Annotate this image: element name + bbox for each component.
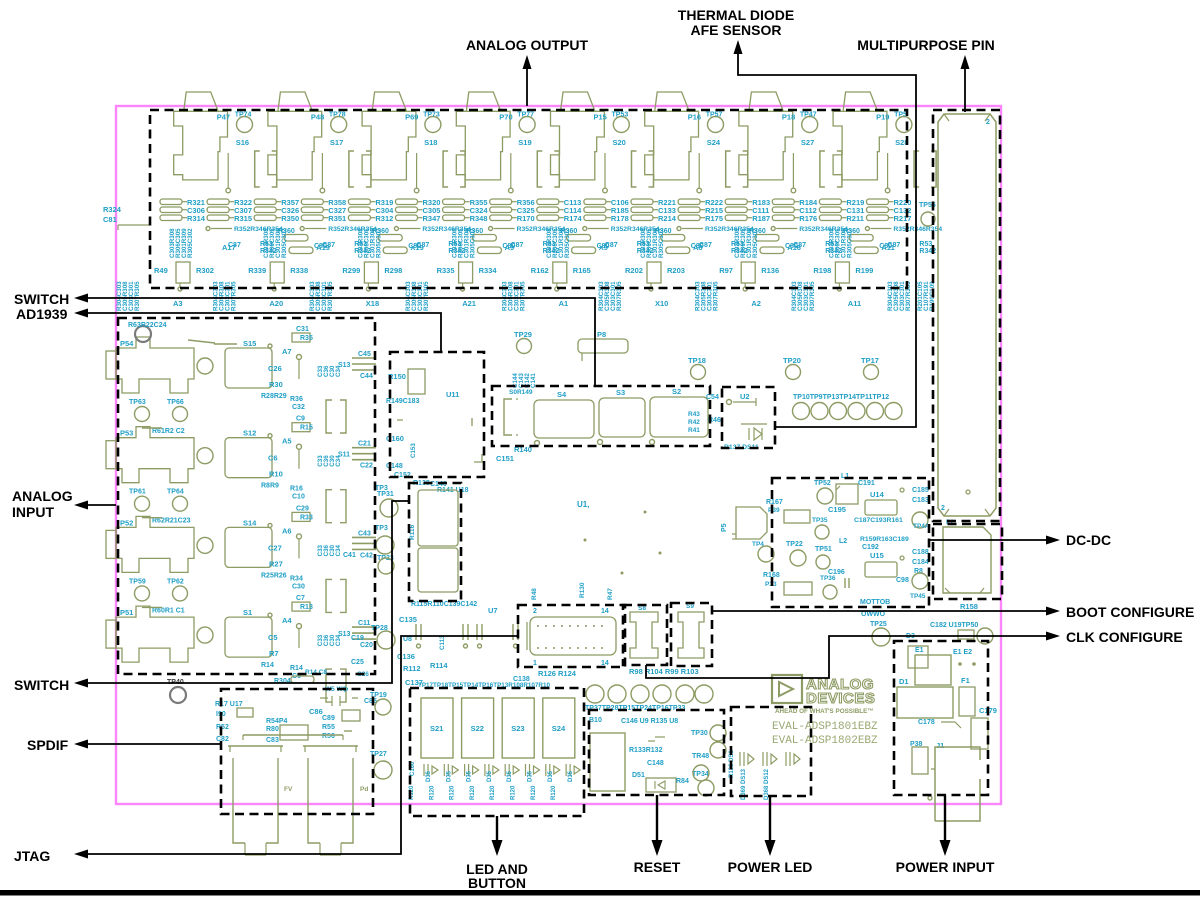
- svg-text:TP47: TP47: [800, 112, 817, 119]
- svg-text:R7: R7: [269, 649, 279, 658]
- svg-text:P53: P53: [120, 429, 133, 438]
- svg-text:R307R305: R307R305: [230, 281, 237, 311]
- svg-text:C19: C19: [351, 635, 364, 642]
- svg-text:R17 U17: R17 U17: [215, 701, 243, 708]
- svg-text:R298: R298: [384, 266, 402, 275]
- svg-text:R130: R130: [579, 582, 586, 598]
- svg-text:S27: S27: [801, 138, 814, 147]
- svg-text:C183: C183: [912, 497, 929, 504]
- svg-text:TP62: TP62: [167, 578, 184, 585]
- svg-text:R55: R55: [322, 724, 335, 731]
- svg-text:U11: U11: [446, 390, 459, 399]
- svg-text:TP53: TP53: [612, 112, 629, 119]
- svg-text:R167: R167: [766, 499, 783, 506]
- svg-text:TP29: TP29: [514, 330, 532, 339]
- svg-text:R53: R53: [919, 241, 932, 248]
- svg-text:U2: U2: [740, 392, 750, 401]
- svg-text:R15: R15: [300, 425, 313, 432]
- svg-text:TP77: TP77: [517, 112, 534, 119]
- svg-text:R97: R97: [719, 266, 733, 275]
- svg-text:TP73: TP73: [423, 112, 440, 119]
- svg-text:U15: U15: [870, 551, 884, 560]
- svg-text:R348: R348: [470, 214, 488, 223]
- svg-text:X18: X18: [366, 299, 379, 308]
- svg-text:R307R305: R307R305: [616, 281, 623, 311]
- svg-text:TP64: TP64: [167, 489, 184, 496]
- svg-text:R120: R120: [429, 785, 435, 800]
- svg-text:R14: R14: [290, 665, 303, 672]
- svg-text:C6: C6: [268, 454, 278, 463]
- svg-text:R187: R187: [752, 214, 770, 223]
- svg-text:R198: R198: [813, 266, 831, 275]
- svg-text:TP78: TP78: [329, 112, 346, 119]
- svg-text:J1: J1: [936, 741, 944, 750]
- svg-text:C34: C34: [335, 544, 342, 556]
- svg-text:ANALOG OUTPUT: ANALOG OUTPUT: [466, 37, 589, 53]
- svg-text:R34: R34: [290, 575, 303, 582]
- svg-text:1: 1: [533, 660, 537, 667]
- svg-text:C87: C87: [322, 242, 335, 249]
- svg-text:R174: R174: [564, 214, 583, 223]
- svg-text:R203: R203: [667, 266, 685, 275]
- svg-text:C87: C87: [511, 242, 524, 249]
- svg-text:C98: C98: [896, 577, 909, 584]
- svg-text:TP3: TP3: [375, 485, 388, 492]
- svg-text:S22: S22: [471, 724, 484, 733]
- svg-text:TP31: TP31: [377, 491, 394, 498]
- svg-text:D35: D35: [467, 770, 473, 782]
- svg-text:P5: P5: [721, 523, 728, 532]
- svg-text:EVAL-ADSP1802EBZ: EVAL-ADSP1802EBZ: [772, 735, 878, 747]
- svg-text:R84: R84: [676, 778, 689, 785]
- svg-text:R315: R315: [234, 214, 252, 223]
- svg-text:U8: U8: [403, 636, 412, 643]
- svg-text:P39: P39: [768, 507, 780, 514]
- svg-text:R80: R80: [266, 726, 279, 733]
- svg-text:TP63: TP63: [129, 399, 146, 406]
- svg-text:BOOT CONFIGURE: BOOT CONFIGURE: [1066, 604, 1194, 620]
- svg-text:D35: D35: [507, 770, 513, 782]
- svg-text:TP45: TP45: [910, 593, 926, 600]
- svg-text:C21: C21: [358, 441, 371, 448]
- svg-text:C86: C86: [309, 707, 323, 716]
- svg-text:C82: C82: [216, 736, 229, 743]
- svg-text:POWER INPUT: POWER INPUT: [896, 859, 995, 875]
- svg-text:R202: R202: [625, 266, 643, 275]
- svg-text:A11: A11: [848, 299, 861, 308]
- svg-text:C31: C31: [296, 326, 309, 333]
- svg-text:R98 R104 R99 R103: R98 R104 R99 R103: [629, 667, 699, 676]
- svg-text:R60R1 C1: R60R1 C1: [152, 607, 185, 614]
- svg-text:R165: R165: [573, 266, 591, 275]
- svg-text:R120: R120: [470, 785, 476, 800]
- svg-text:S21: S21: [430, 724, 443, 733]
- svg-text:R305C302: R305C302: [187, 228, 194, 258]
- svg-text:S14: S14: [243, 518, 257, 527]
- svg-text:S0R149: S0R149: [509, 389, 533, 396]
- svg-text:OWWO: OWWO: [861, 611, 886, 618]
- svg-text:TP57: TP57: [706, 112, 723, 119]
- svg-text:AFE SENSOR: AFE SENSOR: [690, 22, 781, 38]
- svg-text:R136: R136: [761, 266, 779, 275]
- svg-text:R120: R120: [490, 785, 496, 800]
- svg-text:TP25: TP25: [870, 621, 887, 628]
- svg-text:R307R305: R307R305: [712, 281, 719, 311]
- svg-text:TP35: TP35: [812, 517, 828, 524]
- svg-text:S13: S13: [338, 362, 351, 369]
- svg-text:R305C302: R305C302: [470, 228, 477, 258]
- svg-text:S3: S3: [616, 388, 625, 397]
- svg-text:R114: R114: [430, 661, 448, 670]
- svg-text:TP61: TP61: [129, 489, 146, 496]
- svg-text:D51: D51: [632, 772, 645, 779]
- svg-text:R307R305: R307R305: [809, 281, 816, 311]
- svg-text:S4: S4: [557, 390, 567, 399]
- svg-text:MOTTOB: MOTTOB: [860, 599, 890, 606]
- svg-text:S19: S19: [518, 138, 531, 147]
- svg-text:C20: C20: [360, 642, 373, 649]
- svg-text:2: 2: [941, 505, 945, 512]
- svg-text:R33: R33: [300, 514, 313, 521]
- svg-text:R307R305: R307R305: [423, 281, 430, 311]
- svg-text:D35: D35: [568, 770, 574, 782]
- svg-text:R25R26: R25R26: [261, 572, 287, 579]
- svg-text:R8R9: R8R9: [261, 483, 279, 490]
- svg-text:C196: C196: [828, 569, 845, 576]
- svg-text:R48: R48: [531, 588, 538, 600]
- svg-text:C27: C27: [268, 543, 282, 552]
- svg-text:U1,: U1,: [577, 500, 589, 509]
- svg-text:TP51: TP51: [815, 546, 832, 553]
- svg-text:ANALOG: ANALOG: [12, 488, 73, 504]
- svg-text:S2: S2: [672, 387, 681, 396]
- svg-text:TP52: TP52: [814, 480, 831, 487]
- svg-text:JTAG: JTAG: [14, 848, 50, 864]
- svg-text:R28R29: R28R29: [261, 393, 287, 400]
- svg-text:A6: A6: [282, 526, 292, 535]
- svg-text:C5: C5: [268, 633, 278, 642]
- svg-text:R305C302: R305C302: [752, 228, 759, 258]
- svg-text:D35: D35: [548, 770, 554, 782]
- svg-text:C87: C87: [605, 242, 618, 249]
- svg-text:R162: R162: [531, 266, 549, 275]
- svg-text:R42: R42: [688, 419, 700, 426]
- svg-text:AD1939: AD1939: [16, 306, 68, 322]
- svg-text:R13: R13: [300, 604, 313, 611]
- svg-text:R52: R52: [216, 724, 229, 731]
- svg-text:E1 E2: E1 E2: [953, 649, 972, 656]
- svg-text:S1: S1: [243, 608, 252, 617]
- svg-text:MULTIPURPOSE PIN: MULTIPURPOSE PIN: [857, 37, 994, 53]
- svg-text:INPUT: INPUT: [12, 504, 54, 520]
- svg-text:C187C193R161: C187C193R161: [854, 517, 903, 524]
- svg-text:2: 2: [986, 119, 990, 126]
- svg-text:R314: R314: [187, 214, 206, 223]
- svg-text:C42: C42: [360, 552, 373, 559]
- svg-text:R27: R27: [269, 559, 283, 568]
- svg-text:A2: A2: [751, 299, 761, 308]
- svg-text:R30: R30: [269, 380, 283, 389]
- svg-text:S11: S11: [338, 452, 350, 459]
- svg-text:R217: R217: [894, 214, 912, 223]
- svg-text:SPDIF: SPDIF: [27, 737, 69, 753]
- svg-text:DEVICES: DEVICES: [806, 690, 875, 707]
- svg-text:P51: P51: [120, 608, 133, 617]
- svg-text:A4: A4: [282, 616, 292, 625]
- svg-text:R149C183: R149C183: [386, 398, 420, 405]
- svg-text:R211: R211: [846, 214, 864, 223]
- svg-text:C87: C87: [887, 242, 900, 249]
- svg-text:R312: R312: [375, 214, 393, 223]
- svg-text:C25: C25: [351, 659, 364, 666]
- svg-text:Pd: Pd: [360, 786, 368, 793]
- svg-text:S20: S20: [613, 138, 626, 147]
- svg-text:C192: C192: [862, 544, 879, 551]
- svg-text:R159R163C189: R159R163C189: [860, 536, 909, 543]
- svg-text:R305C302: R305C302: [846, 228, 853, 258]
- svg-text:C195: C195: [828, 505, 846, 514]
- svg-text:BUTTON: BUTTON: [468, 875, 526, 891]
- svg-text:R41: R41: [688, 427, 700, 434]
- svg-text:C11: C11: [358, 620, 371, 627]
- svg-text:U7: U7: [488, 606, 498, 615]
- svg-text:A5: A5: [282, 437, 292, 446]
- svg-text:P16: P16: [688, 113, 701, 122]
- svg-text:R305C302: R305C302: [658, 228, 665, 258]
- svg-text:A7: A7: [282, 347, 292, 356]
- svg-text:DC-DC: DC-DC: [1066, 532, 1111, 548]
- svg-text:P19: P19: [876, 113, 889, 122]
- svg-text:R199: R199: [855, 266, 873, 275]
- svg-text:TR48: TR48: [692, 753, 709, 760]
- svg-text:TP4A: TP4A: [913, 523, 930, 530]
- svg-text:C32: C32: [292, 404, 305, 411]
- svg-text:C87: C87: [228, 242, 241, 249]
- svg-text:C188: C188: [912, 549, 929, 556]
- svg-text:P15: P15: [594, 113, 607, 122]
- svg-text:TP74: TP74: [235, 112, 252, 119]
- svg-text:S23: S23: [511, 724, 524, 733]
- svg-text:A1: A1: [559, 299, 569, 308]
- svg-text:C136: C136: [397, 652, 415, 661]
- svg-text:R307R305: R307R305: [327, 281, 334, 311]
- svg-text:2: 2: [533, 608, 537, 615]
- svg-text:R47: R47: [607, 588, 614, 600]
- svg-text:R307R305: R307R305: [520, 281, 527, 311]
- svg-text:TP3: TP3: [375, 525, 388, 532]
- svg-text:R305C302: R305C302: [564, 228, 571, 258]
- svg-text:14: 14: [601, 608, 609, 615]
- svg-text:TP20: TP20: [783, 356, 801, 365]
- svg-text:R61R2 C2: R61R2 C2: [152, 428, 185, 435]
- svg-text:P47: P47: [217, 113, 230, 122]
- svg-text:F1: F1: [961, 676, 970, 685]
- svg-text:R56: R56: [322, 733, 335, 740]
- svg-text:R14: R14: [261, 662, 274, 669]
- svg-text:R133R132: R133R132: [629, 747, 663, 754]
- svg-text:C29: C29: [296, 505, 309, 512]
- svg-text:S18: S18: [424, 138, 437, 147]
- svg-text:TP17: TP17: [861, 356, 879, 365]
- svg-text:R176: R176: [799, 214, 817, 223]
- svg-text:S24: S24: [707, 138, 721, 147]
- svg-text:C43: C43: [358, 530, 371, 537]
- svg-text:R351: R351: [328, 214, 346, 223]
- svg-text:C178: C178: [918, 719, 935, 726]
- svg-text:P52: P52: [120, 518, 133, 527]
- svg-text:C87: C87: [699, 242, 712, 249]
- svg-text:R352R346R354: R352R346R354: [893, 226, 942, 233]
- svg-text:R305C302: R305C302: [281, 228, 288, 258]
- svg-text:C113: C113: [439, 635, 446, 650]
- svg-text:R302: R302: [196, 266, 214, 275]
- svg-text:C30: C30: [292, 583, 305, 590]
- svg-text:R338: R338: [290, 266, 308, 275]
- svg-text:B10: B10: [589, 717, 602, 724]
- svg-text:R170: R170: [517, 214, 535, 223]
- svg-text:R16: R16: [290, 486, 303, 493]
- svg-text:POWER LED: POWER LED: [728, 859, 813, 875]
- svg-text:C10: C10: [292, 494, 305, 501]
- svg-text:R178: R178: [611, 214, 629, 223]
- svg-text:EVAL-ADSP1801EBZ: EVAL-ADSP1801EBZ: [772, 721, 878, 733]
- svg-text:R112: R112: [403, 664, 421, 673]
- svg-text:R10: R10: [269, 470, 283, 479]
- svg-text:P70: P70: [499, 113, 512, 122]
- svg-text:D35: D35: [487, 770, 493, 782]
- svg-text:R126 R124: R126 R124: [538, 669, 577, 678]
- svg-text:R335: R335: [437, 266, 455, 275]
- svg-text:C7: C7: [296, 595, 305, 602]
- svg-text:R347: R347: [423, 214, 441, 223]
- svg-text:D35: D35: [528, 770, 534, 782]
- svg-text:C81: C81: [103, 215, 117, 224]
- svg-text:CLK CONFIGURE: CLK CONFIGURE: [1066, 629, 1183, 645]
- svg-text:C44: C44: [360, 373, 373, 380]
- svg-text:C41: C41: [343, 552, 356, 559]
- svg-text:R43: R43: [688, 411, 700, 418]
- svg-text:RESET: RESET: [634, 859, 681, 875]
- svg-text:R324: R324: [103, 205, 122, 214]
- svg-text:P18: P18: [782, 113, 795, 122]
- svg-text:C89: C89: [322, 715, 335, 722]
- svg-text:C87: C87: [416, 242, 429, 249]
- svg-text:E1: E1: [915, 647, 924, 654]
- svg-text:C148: C148: [647, 760, 664, 767]
- svg-text:U14: U14: [870, 490, 885, 499]
- svg-text:R214: R214: [658, 214, 677, 223]
- svg-text:C54: C54: [706, 394, 719, 401]
- svg-text:C83: C83: [266, 737, 279, 744]
- svg-text:R36: R36: [290, 396, 303, 403]
- svg-text:R305C302: R305C302: [375, 228, 382, 258]
- svg-text:R120: R120: [551, 785, 557, 800]
- svg-text:R62R21C23: R62R21C23: [152, 518, 191, 525]
- svg-text:TP22: TP22: [786, 541, 803, 548]
- svg-text:P69: P69: [405, 113, 418, 122]
- svg-text:R158: R158: [960, 602, 978, 611]
- svg-text:TP66: TP66: [167, 399, 184, 406]
- svg-text:R63R22C24: R63R22C24: [128, 322, 167, 329]
- svg-text:P48: P48: [311, 113, 324, 122]
- svg-text:R54P4: R54P4: [266, 718, 288, 725]
- svg-text:C191: C191: [858, 480, 875, 487]
- svg-text:C160: C160: [386, 434, 404, 443]
- svg-text:R307R305: R307R305: [134, 281, 141, 311]
- svg-text:D35: D35: [446, 770, 452, 782]
- svg-text:TP10TP9TP13TP14TP11TP12: TP10TP9TP13TP14TP11TP12: [793, 394, 889, 401]
- svg-text:A3: A3: [173, 299, 183, 308]
- svg-text:TP18: TP18: [688, 356, 706, 365]
- svg-text:R49: R49: [154, 266, 168, 275]
- svg-text:R334: R334: [479, 266, 498, 275]
- svg-text:X10: X10: [655, 299, 668, 308]
- svg-text:C45: C45: [358, 351, 371, 358]
- svg-text:P54: P54: [120, 339, 134, 348]
- svg-text:C185: C185: [912, 487, 929, 494]
- svg-text:R299: R299: [342, 266, 360, 275]
- svg-text:C182 U19TP50: C182 U19TP50: [930, 622, 978, 629]
- svg-text:C9: C9: [296, 416, 305, 423]
- svg-text:C26: C26: [268, 364, 282, 373]
- svg-text:C87: C87: [793, 242, 806, 249]
- svg-text:R304: R304: [274, 678, 291, 685]
- svg-text:S17: S17: [330, 138, 343, 147]
- svg-text:A20: A20: [269, 299, 283, 308]
- svg-text:A21: A21: [462, 299, 476, 308]
- svg-text:SWITCH: SWITCH: [14, 677, 69, 693]
- svg-text:R175: R175: [705, 214, 723, 223]
- svg-text:P8: P8: [597, 330, 606, 339]
- svg-text:SWITCH: SWITCH: [14, 291, 69, 307]
- svg-text:C148: C148: [386, 463, 403, 470]
- svg-text:C135: C135: [399, 615, 417, 624]
- svg-text:THERMAL DIODE: THERMAL DIODE: [678, 7, 794, 23]
- svg-text:TP59: TP59: [129, 578, 146, 585]
- svg-text:C153: C153: [410, 443, 417, 458]
- svg-text:AHEAD OF WHAT'S POSSIBLE™: AHEAD OF WHAT'S POSSIBLE™: [775, 708, 874, 715]
- svg-text:S13: S13: [338, 631, 351, 638]
- svg-text:R339: R339: [248, 266, 266, 275]
- svg-text:S15: S15: [243, 339, 256, 348]
- svg-text:C22: C22: [360, 463, 373, 470]
- svg-text:C151: C151: [496, 454, 514, 463]
- svg-text:C184: C184: [912, 559, 929, 566]
- svg-text:S16: S16: [236, 138, 249, 147]
- svg-text:TP5: TP5: [894, 112, 907, 119]
- svg-text:R120: R120: [531, 785, 537, 800]
- svg-text:FV: FV: [284, 786, 293, 793]
- svg-text:R120: R120: [450, 785, 456, 800]
- svg-text:TP28: TP28: [371, 625, 388, 632]
- svg-text:R350: R350: [281, 214, 299, 223]
- svg-text:TP36: TP36: [820, 575, 836, 582]
- svg-text:S12: S12: [243, 429, 256, 438]
- svg-text:R120: R120: [511, 785, 517, 800]
- svg-text:S24: S24: [552, 724, 566, 733]
- svg-text:L2: L2: [839, 538, 847, 545]
- svg-text:D35: D35: [426, 770, 432, 782]
- svg-text:D1: D1: [899, 677, 909, 686]
- svg-text:C146 U9 R135 U8: C146 U9 R135 U8: [621, 718, 678, 725]
- svg-text:R35: R35: [300, 335, 313, 342]
- svg-text:TP30: TP30: [691, 730, 708, 737]
